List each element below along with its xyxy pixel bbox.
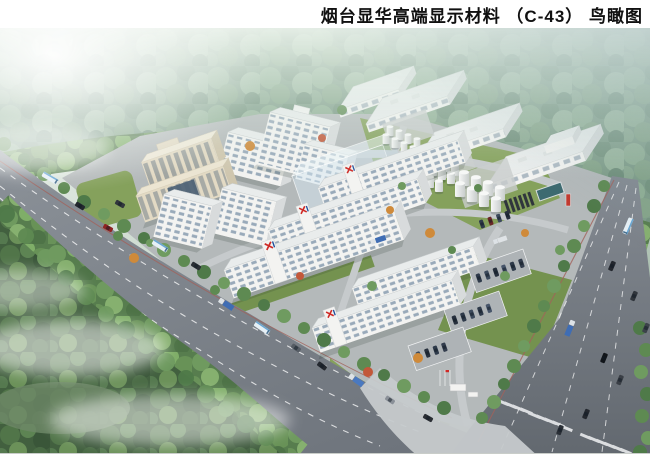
drawing-page: 烟台显华高端显示材料 （C-43） 鸟瞰图 — [0, 0, 650, 460]
rendering-canvas — [0, 28, 650, 453]
right-tint-overlay — [300, 28, 650, 278]
title-bar: 烟台显华高端显示材料 （C-43） 鸟瞰图 — [0, 0, 650, 28]
drawing-title: 烟台显华高端显示材料 （C-43） 鸟瞰图 — [321, 2, 643, 27]
aerial-rendering — [0, 28, 650, 454]
